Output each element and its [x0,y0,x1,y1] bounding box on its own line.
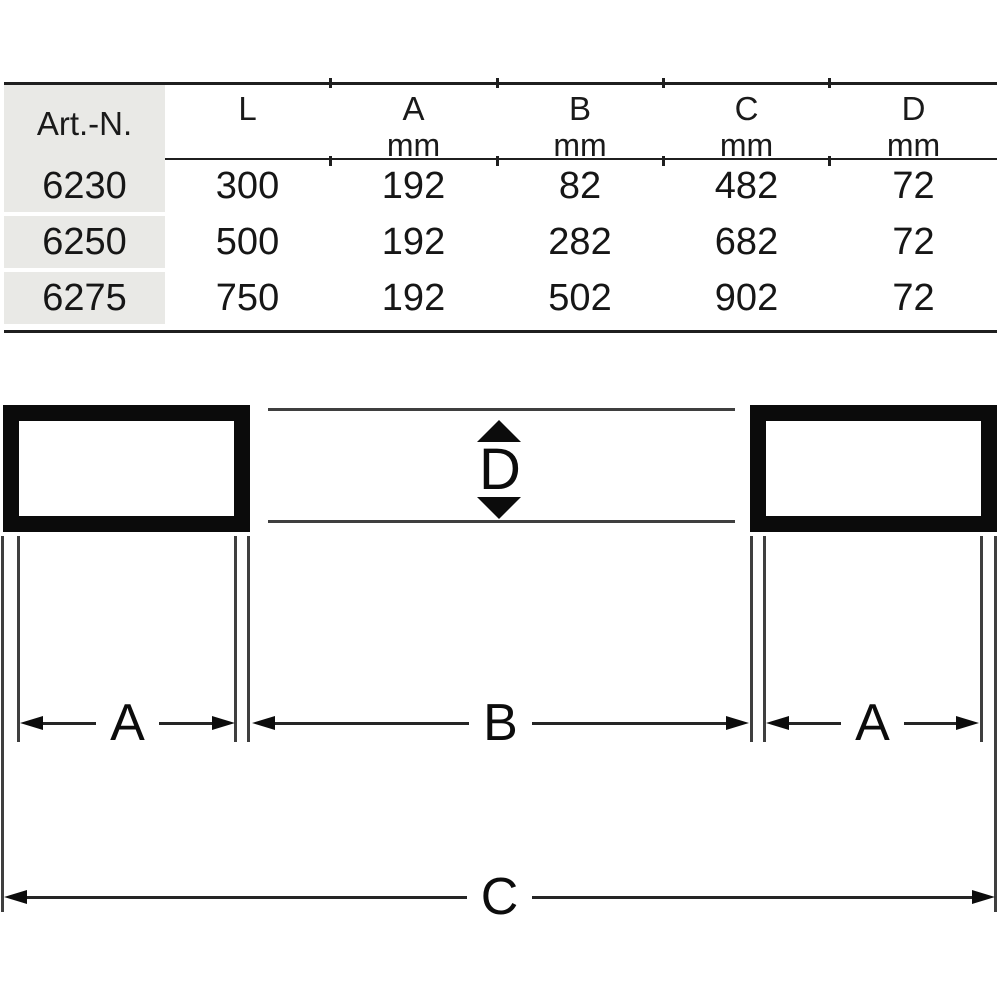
column-tick [662,156,665,166]
dimension-line [904,722,956,725]
arrow-right-icon [972,890,995,904]
cell-l: 300 [165,160,330,212]
cell-art-number: 6230 [4,160,165,212]
dimension-b: B [252,694,749,752]
dim-c-label: C [467,871,533,923]
extension-line-right-outer [994,536,997,912]
extension-line [980,536,983,742]
d-top-line [268,408,735,411]
header-cell-d: D mm [830,85,997,163]
header-label: A [330,91,497,127]
cell-art-number: 6275 [4,272,165,324]
cell-c: 482 [663,160,830,212]
column-tick [828,156,831,166]
cell-b: 502 [497,272,663,324]
spec-table: Art.-N. L A mm B mm C mm D mm 6230 300 1… [4,82,997,333]
arrow-left-icon [252,716,275,730]
table-header-row: Art.-N. L A mm B mm C mm D mm [4,85,997,160]
cell-a: 192 [330,160,497,212]
arrow-right-icon [726,716,749,730]
cell-d: 72 [830,216,997,268]
dimension-line [789,722,841,725]
dimension-line [27,896,467,899]
header-unit: mm [663,127,830,163]
cell-b: 82 [497,160,663,212]
header-label: D [830,91,997,127]
dim-d-label: D [479,441,521,499]
cell-d: 72 [830,272,997,324]
arrow-down-icon [477,497,521,519]
extension-line [750,536,753,742]
header-cell-art-n: Art.-N. [4,85,165,163]
cell-l: 500 [165,216,330,268]
header-unit: mm [330,127,497,163]
table-row: 6230 300 192 82 482 72 [4,160,997,212]
header-label: L [165,91,330,127]
header-cell-a: A mm [330,85,497,163]
right-profile-outline [750,405,997,532]
table-row: 6250 500 192 282 682 72 [4,216,997,268]
cell-c: 902 [663,272,830,324]
arrow-right-icon [212,716,235,730]
dimension-line [159,722,212,725]
column-tick [496,78,499,88]
dimension-line [532,896,972,899]
header-cell-l: L [165,85,330,163]
extension-line [247,536,250,742]
header-unit: mm [830,127,997,163]
column-tick [329,78,332,88]
header-label: Art.-N. [37,106,132,142]
page: { "table": { "columns": [ { "label": "Ar… [0,0,1000,1000]
header-unit: mm [497,127,663,163]
dimension-line [532,722,726,725]
cell-b: 282 [497,216,663,268]
header-cell-c: C mm [663,85,830,163]
d-bottom-line [268,520,735,523]
arrow-right-icon [956,716,979,730]
dim-a-right-label: A [841,697,904,749]
dim-b-label: B [469,697,532,749]
cell-art-number: 6250 [4,216,165,268]
column-tick [662,78,665,88]
column-tick [496,156,499,166]
header-cell-b: B mm [497,85,663,163]
cell-a: 192 [330,216,497,268]
dimension-a-right: A [766,694,979,752]
cell-a: 192 [330,272,497,324]
arrow-left-icon [4,890,27,904]
extension-line-left-outer [1,536,4,912]
header-label: B [497,91,663,127]
cell-l: 750 [165,272,330,324]
dimension-line [43,722,96,725]
cell-c: 682 [663,216,830,268]
arrow-left-icon [20,716,43,730]
column-tick [828,78,831,88]
dimension-c: C [4,868,995,926]
dimension-line [275,722,469,725]
left-profile-outline [3,405,250,532]
arrow-left-icon [766,716,789,730]
cell-d: 72 [830,160,997,212]
dimension-a-left: A [20,694,235,752]
table-row: 6275 750 192 502 902 72 [4,272,997,324]
column-tick [329,156,332,166]
dim-a-left-label: A [96,697,159,749]
header-label: C [663,91,830,127]
